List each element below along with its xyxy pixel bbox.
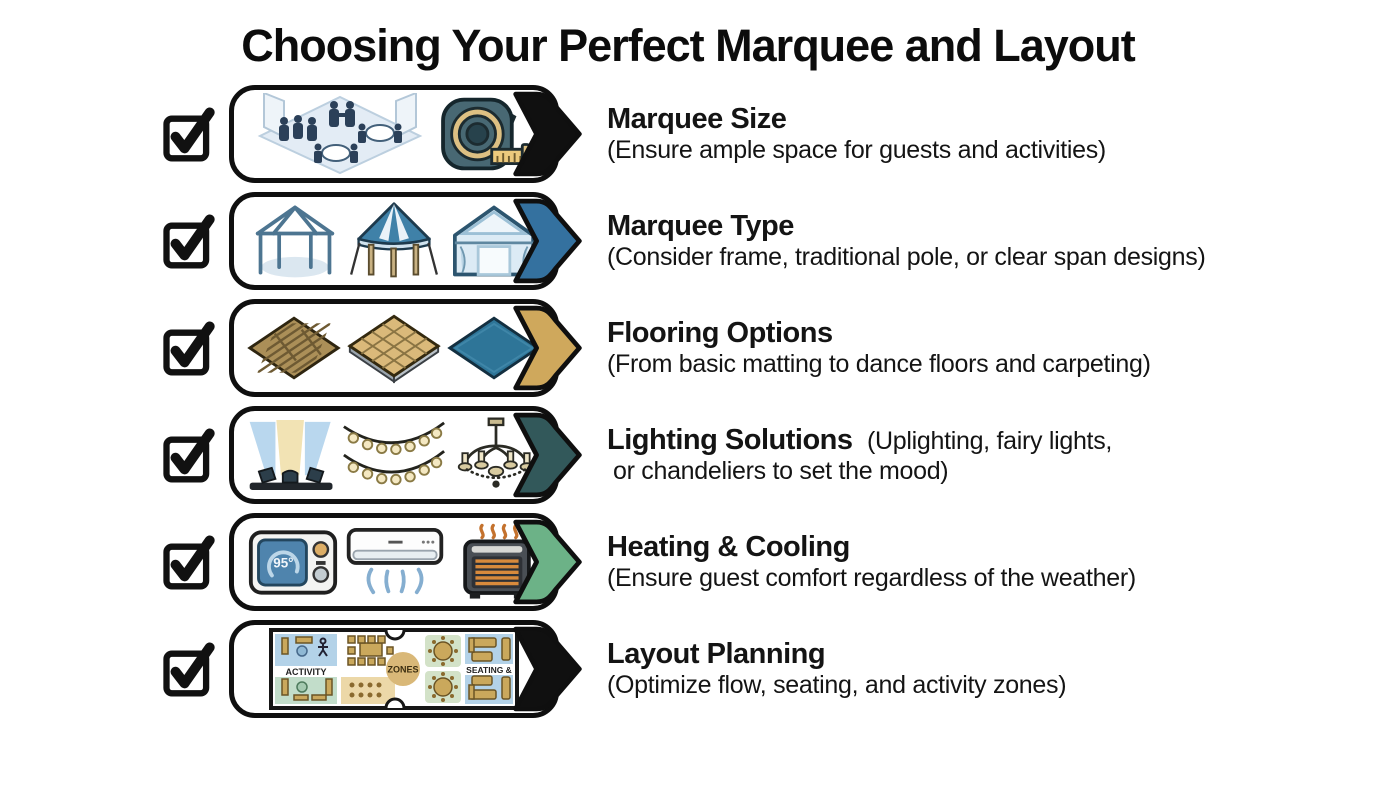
- floor-plan-label-activity: ACTIVITY: [285, 667, 326, 677]
- checkbox-checked-icon: [162, 317, 216, 379]
- row-title: Marquee Type: [607, 209, 1205, 243]
- row-layout-planning: ACTIVITY ZONES: [0, 619, 1376, 718]
- row-heating-cooling: 95°: [0, 512, 1376, 611]
- pole-tent-icon: [347, 200, 441, 282]
- row-marquee-size: Marquee Size (Ensure ample space for gue…: [0, 84, 1376, 183]
- row-description: (From basic matting to dance floors and …: [607, 350, 1151, 380]
- row-title: Lighting Solutions: [607, 424, 853, 456]
- floor-plan-label-zones: ZONES: [387, 664, 418, 674]
- wood-matting-icon: [246, 314, 342, 382]
- thermostat-reading: 95°: [273, 555, 293, 570]
- fairy-lights-icon: [342, 415, 446, 495]
- arrow-right-icon: [510, 406, 586, 504]
- row-lighting-solutions: Lighting Solutions (Uplighting, fairy li…: [0, 405, 1376, 504]
- row-title: Layout Planning: [607, 637, 1066, 671]
- checkbox-checked-icon: [162, 638, 216, 700]
- dance-floor-icon: [346, 312, 442, 384]
- thermostat-icon: 95°: [247, 523, 339, 601]
- checkbox-checked-icon: [162, 103, 216, 165]
- arrow-right-icon: [510, 299, 586, 397]
- row-description: (Ensure ample space for guests and activ…: [607, 136, 1106, 166]
- frame-marquee-icon: [248, 200, 342, 282]
- air-conditioner-icon: [343, 523, 447, 601]
- floor-plan-icon: ACTIVITY ZONES: [266, 627, 522, 711]
- row-title: Heating & Cooling: [607, 530, 1136, 564]
- arrow-right-icon: [510, 85, 586, 183]
- row-title: Flooring Options: [607, 316, 1151, 350]
- uplighting-icon: [246, 415, 338, 495]
- row-marquee-type: Marquee Type (Consider frame, traditiona…: [0, 191, 1376, 290]
- row-description: (Optimize flow, seating, and activity zo…: [607, 671, 1066, 701]
- row-title: Marquee Size: [607, 102, 1106, 136]
- checkbox-checked-icon: [162, 531, 216, 593]
- row-description: or chandeliers to set the mood): [607, 457, 1112, 487]
- row-description: (Ensure guest comfort regardless of the …: [607, 564, 1136, 594]
- row-description-inline: (Uplighting, fairy lights,: [867, 427, 1112, 455]
- row-flooring-options: Flooring Options (From basic matting to …: [0, 298, 1376, 397]
- arrow-right-icon: [510, 513, 586, 611]
- checkbox-checked-icon: [162, 424, 216, 486]
- arrow-right-icon: [510, 192, 586, 290]
- checkbox-checked-icon: [162, 210, 216, 272]
- floor-plan-label-seating: SEATING &: [466, 665, 512, 675]
- checklist: Marquee Size (Ensure ample space for gue…: [0, 84, 1376, 718]
- guests-floorplan-icon: [254, 93, 426, 175]
- arrow-right-icon: [510, 620, 586, 718]
- row-description: (Consider frame, traditional pole, or cl…: [607, 243, 1205, 273]
- page-title: Choosing Your Perfect Marquee and Layout: [0, 20, 1376, 72]
